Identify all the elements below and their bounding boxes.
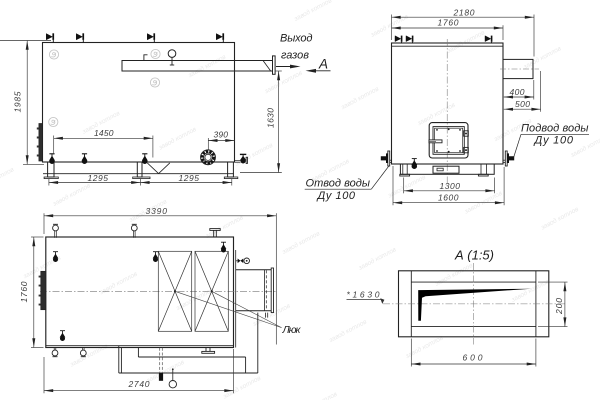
svg-text:1450: 1450 (94, 128, 114, 138)
svg-text:газов: газов (281, 50, 309, 62)
svg-text:Выход: Выход (280, 33, 313, 45)
svg-text:1760: 1760 (19, 281, 29, 302)
svg-text:Ду 100: Ду 100 (316, 190, 356, 202)
svg-text:200: 200 (554, 298, 564, 315)
svg-text:А: А (318, 57, 328, 72)
svg-text:1300: 1300 (440, 181, 461, 191)
svg-text:1295: 1295 (179, 173, 200, 183)
svg-text:500: 500 (515, 99, 530, 109)
svg-text:1985: 1985 (13, 91, 23, 112)
svg-text:Ду 100: Ду 100 (533, 135, 574, 147)
svg-text:1630: 1630 (266, 108, 276, 128)
svg-text:А (1:5): А (1:5) (454, 248, 494, 263)
svg-text:390: 390 (214, 130, 229, 140)
svg-text:Люк: Люк (282, 324, 302, 336)
svg-text:1295: 1295 (88, 173, 109, 183)
svg-text:2180: 2180 (453, 8, 475, 18)
svg-text:400: 400 (510, 87, 525, 97)
svg-text:600: 600 (463, 352, 483, 362)
svg-text:1760: 1760 (438, 18, 459, 28)
svg-text:1600: 1600 (438, 193, 459, 203)
